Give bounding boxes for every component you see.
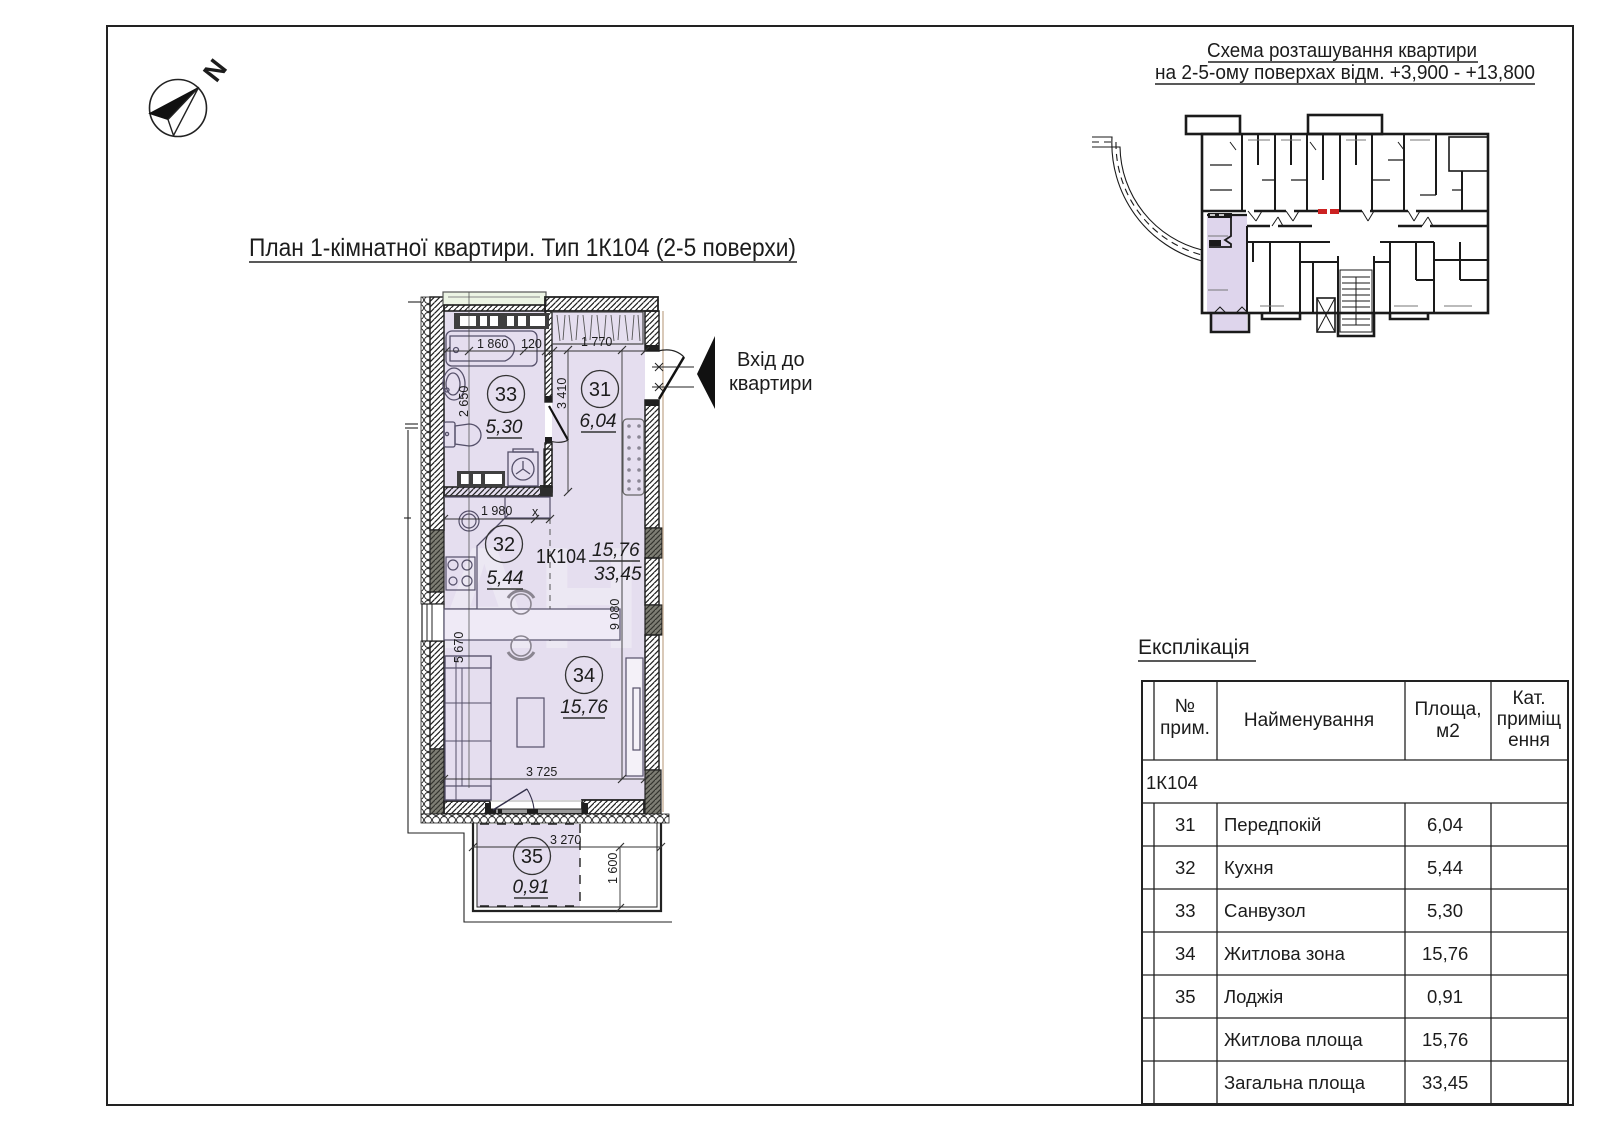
svg-text:приміщ: приміщ xyxy=(1497,709,1562,730)
svg-text:Найменування: Найменування xyxy=(1244,710,1374,731)
svg-text:1 860: 1 860 xyxy=(477,337,508,351)
svg-text:32: 32 xyxy=(493,534,515,556)
svg-text:120: 120 xyxy=(521,337,542,351)
svg-text:Вхід до: Вхід до xyxy=(737,349,805,371)
svg-text:31: 31 xyxy=(1175,814,1196,835)
svg-text:Житлова зона: Житлова зона xyxy=(1224,943,1346,964)
svg-text:35: 35 xyxy=(521,846,543,868)
svg-text:ення: ення xyxy=(1508,730,1550,751)
svg-text:Схема розташування квартири: Схема розташування квартири xyxy=(1207,40,1477,62)
svg-text:5,44: 5,44 xyxy=(1427,857,1463,878)
svg-text:3 270: 3 270 xyxy=(550,833,581,847)
svg-text:0,91: 0,91 xyxy=(513,877,550,898)
svg-text:Передпокій: Передпокій xyxy=(1224,814,1321,835)
svg-text:9 080: 9 080 xyxy=(608,599,622,630)
svg-text:Кат.: Кат. xyxy=(1512,688,1545,709)
svg-text:Експлікація: Експлікація xyxy=(1138,636,1250,659)
svg-text:Житлова площа: Житлова площа xyxy=(1224,1029,1363,1050)
svg-text:1К104: 1К104 xyxy=(536,546,586,568)
svg-text:Загальна площа: Загальна площа xyxy=(1224,1072,1366,1093)
svg-text:1К104: 1К104 xyxy=(1146,772,1198,793)
svg-text:м2: м2 xyxy=(1436,721,1460,742)
svg-text:x: x xyxy=(532,505,539,519)
svg-text:3 410: 3 410 xyxy=(555,378,569,409)
svg-text:1 770: 1 770 xyxy=(581,335,612,349)
svg-text:34: 34 xyxy=(573,665,595,687)
svg-text:прим.: прим. xyxy=(1160,718,1210,739)
svg-text:33,45: 33,45 xyxy=(594,564,642,585)
svg-text:Кухня: Кухня xyxy=(1224,857,1274,878)
svg-text:План 1-кімнатної квартири. Тип: План 1-кімнатної квартири. Тип 1К104 (2-… xyxy=(249,234,796,262)
svg-text:5,30: 5,30 xyxy=(486,417,523,438)
svg-text:6,04: 6,04 xyxy=(580,411,617,432)
svg-text:2 650: 2 650 xyxy=(457,386,471,417)
svg-text:5,44: 5,44 xyxy=(487,568,524,589)
svg-text:35: 35 xyxy=(1175,986,1196,1007)
svg-text:5,30: 5,30 xyxy=(1427,900,1463,921)
svg-text:31: 31 xyxy=(589,379,611,401)
svg-text:15,76: 15,76 xyxy=(560,697,608,718)
svg-text:32: 32 xyxy=(1175,857,1196,878)
svg-text:15,76: 15,76 xyxy=(1422,943,1468,964)
svg-text:33: 33 xyxy=(1175,900,1196,921)
svg-text:0,91: 0,91 xyxy=(1427,986,1463,1007)
svg-text:33,45: 33,45 xyxy=(1422,1072,1468,1093)
svg-text:№: № xyxy=(1175,696,1195,717)
svg-text:6,04: 6,04 xyxy=(1427,814,1463,835)
svg-text:15,76: 15,76 xyxy=(1422,1029,1468,1050)
svg-text:Площа,: Площа, xyxy=(1414,699,1481,720)
svg-text:квартири: квартири xyxy=(729,373,813,395)
svg-text:34: 34 xyxy=(1175,943,1196,964)
svg-text:на 2-5-ому поверхах відм. +3,9: на 2-5-ому поверхах відм. +3,900 - +13,8… xyxy=(1155,62,1535,84)
svg-text:Санвузол: Санвузол xyxy=(1224,900,1306,921)
svg-text:1 600: 1 600 xyxy=(606,853,620,884)
svg-text:Лоджія: Лоджія xyxy=(1224,986,1283,1007)
svg-text:3 725: 3 725 xyxy=(526,765,557,779)
svg-text:15,76: 15,76 xyxy=(592,540,640,561)
svg-text:1 980: 1 980 xyxy=(481,504,512,518)
svg-text:33: 33 xyxy=(495,384,517,406)
svg-text:N: N xyxy=(197,53,233,87)
svg-text:5 670: 5 670 xyxy=(452,632,466,663)
